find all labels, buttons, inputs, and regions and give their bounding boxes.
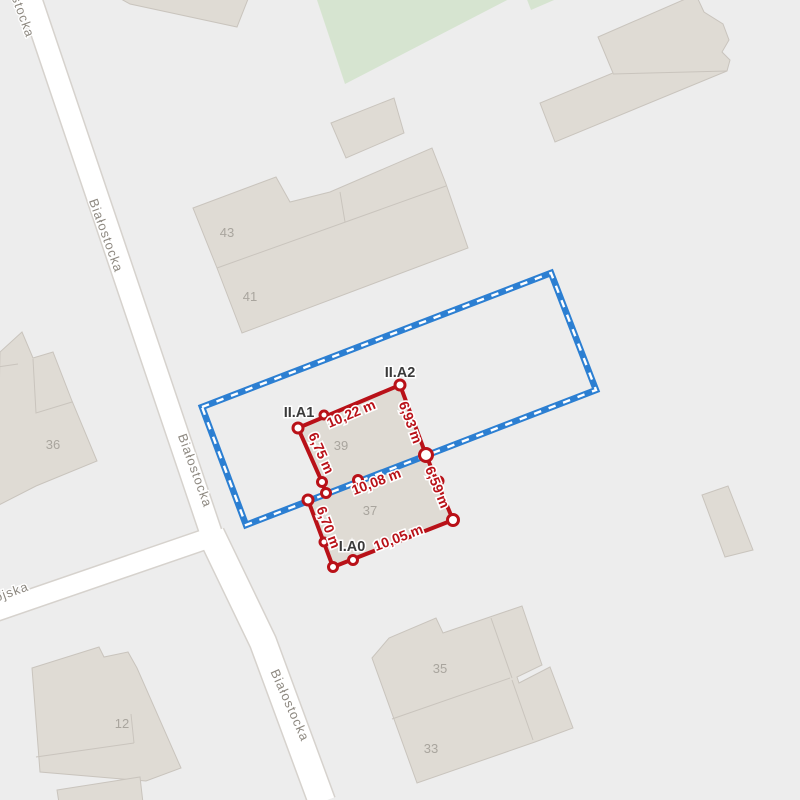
building-number: 36	[46, 437, 60, 452]
survey-point-label: II.A1	[284, 405, 315, 421]
building-number: 37	[363, 503, 377, 518]
survey-point[interactable]	[448, 515, 459, 526]
survey-point[interactable]	[322, 489, 331, 498]
map-canvas[interactable]: 43 41 36 35 33 12 stocka Białostocka Bia…	[0, 0, 800, 800]
survey-point[interactable]	[329, 563, 338, 572]
survey-point[interactable]	[420, 449, 433, 462]
building-number: 33	[424, 741, 438, 756]
survey-point-label: II.A2	[385, 365, 416, 381]
survey-point[interactable]	[303, 495, 313, 505]
building-number: 41	[243, 289, 257, 304]
building-number: 12	[115, 716, 129, 731]
survey-point[interactable]	[395, 380, 405, 390]
survey-point[interactable]	[293, 423, 303, 433]
map-viewport[interactable]: 43 41 36 35 33 12 stocka Białostocka Bia…	[0, 0, 800, 800]
building-number: 39	[334, 438, 348, 453]
building-number: 43	[220, 225, 234, 240]
survey-point[interactable]	[318, 478, 327, 487]
survey-point[interactable]	[349, 556, 358, 565]
survey-point-label: I.A0	[339, 539, 366, 555]
building-number: 35	[433, 661, 447, 676]
